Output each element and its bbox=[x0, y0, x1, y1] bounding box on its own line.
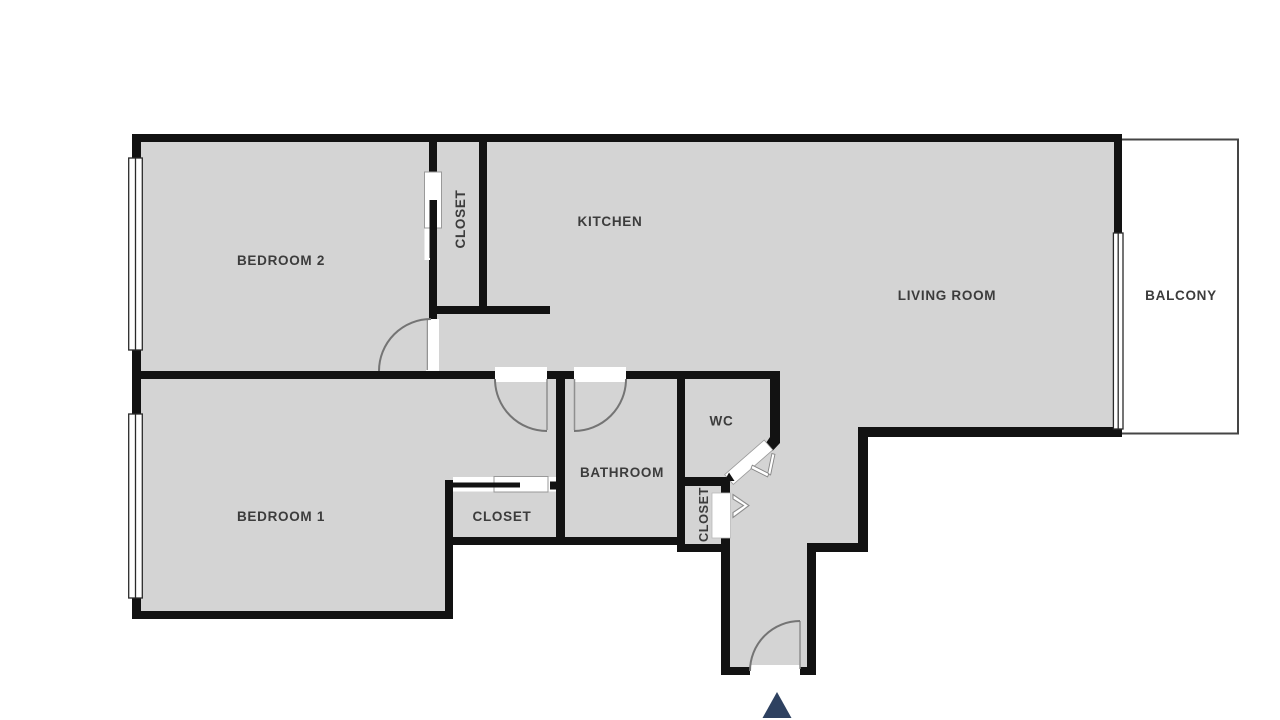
svg-text:KITCHEN: KITCHEN bbox=[578, 214, 643, 229]
svg-text:BEDROOM 1: BEDROOM 1 bbox=[237, 509, 325, 524]
svg-text:BEDROOM 2: BEDROOM 2 bbox=[237, 253, 325, 268]
svg-text:CLOSET: CLOSET bbox=[453, 189, 468, 248]
svg-text:CLOSET: CLOSET bbox=[696, 487, 711, 542]
svg-text:BALCONY: BALCONY bbox=[1145, 288, 1217, 303]
svg-text:LIVING ROOM: LIVING ROOM bbox=[898, 288, 996, 303]
svg-text:CLOSET: CLOSET bbox=[473, 509, 532, 524]
svg-text:WC: WC bbox=[710, 414, 734, 429]
svg-text:BATHROOM: BATHROOM bbox=[580, 465, 664, 480]
